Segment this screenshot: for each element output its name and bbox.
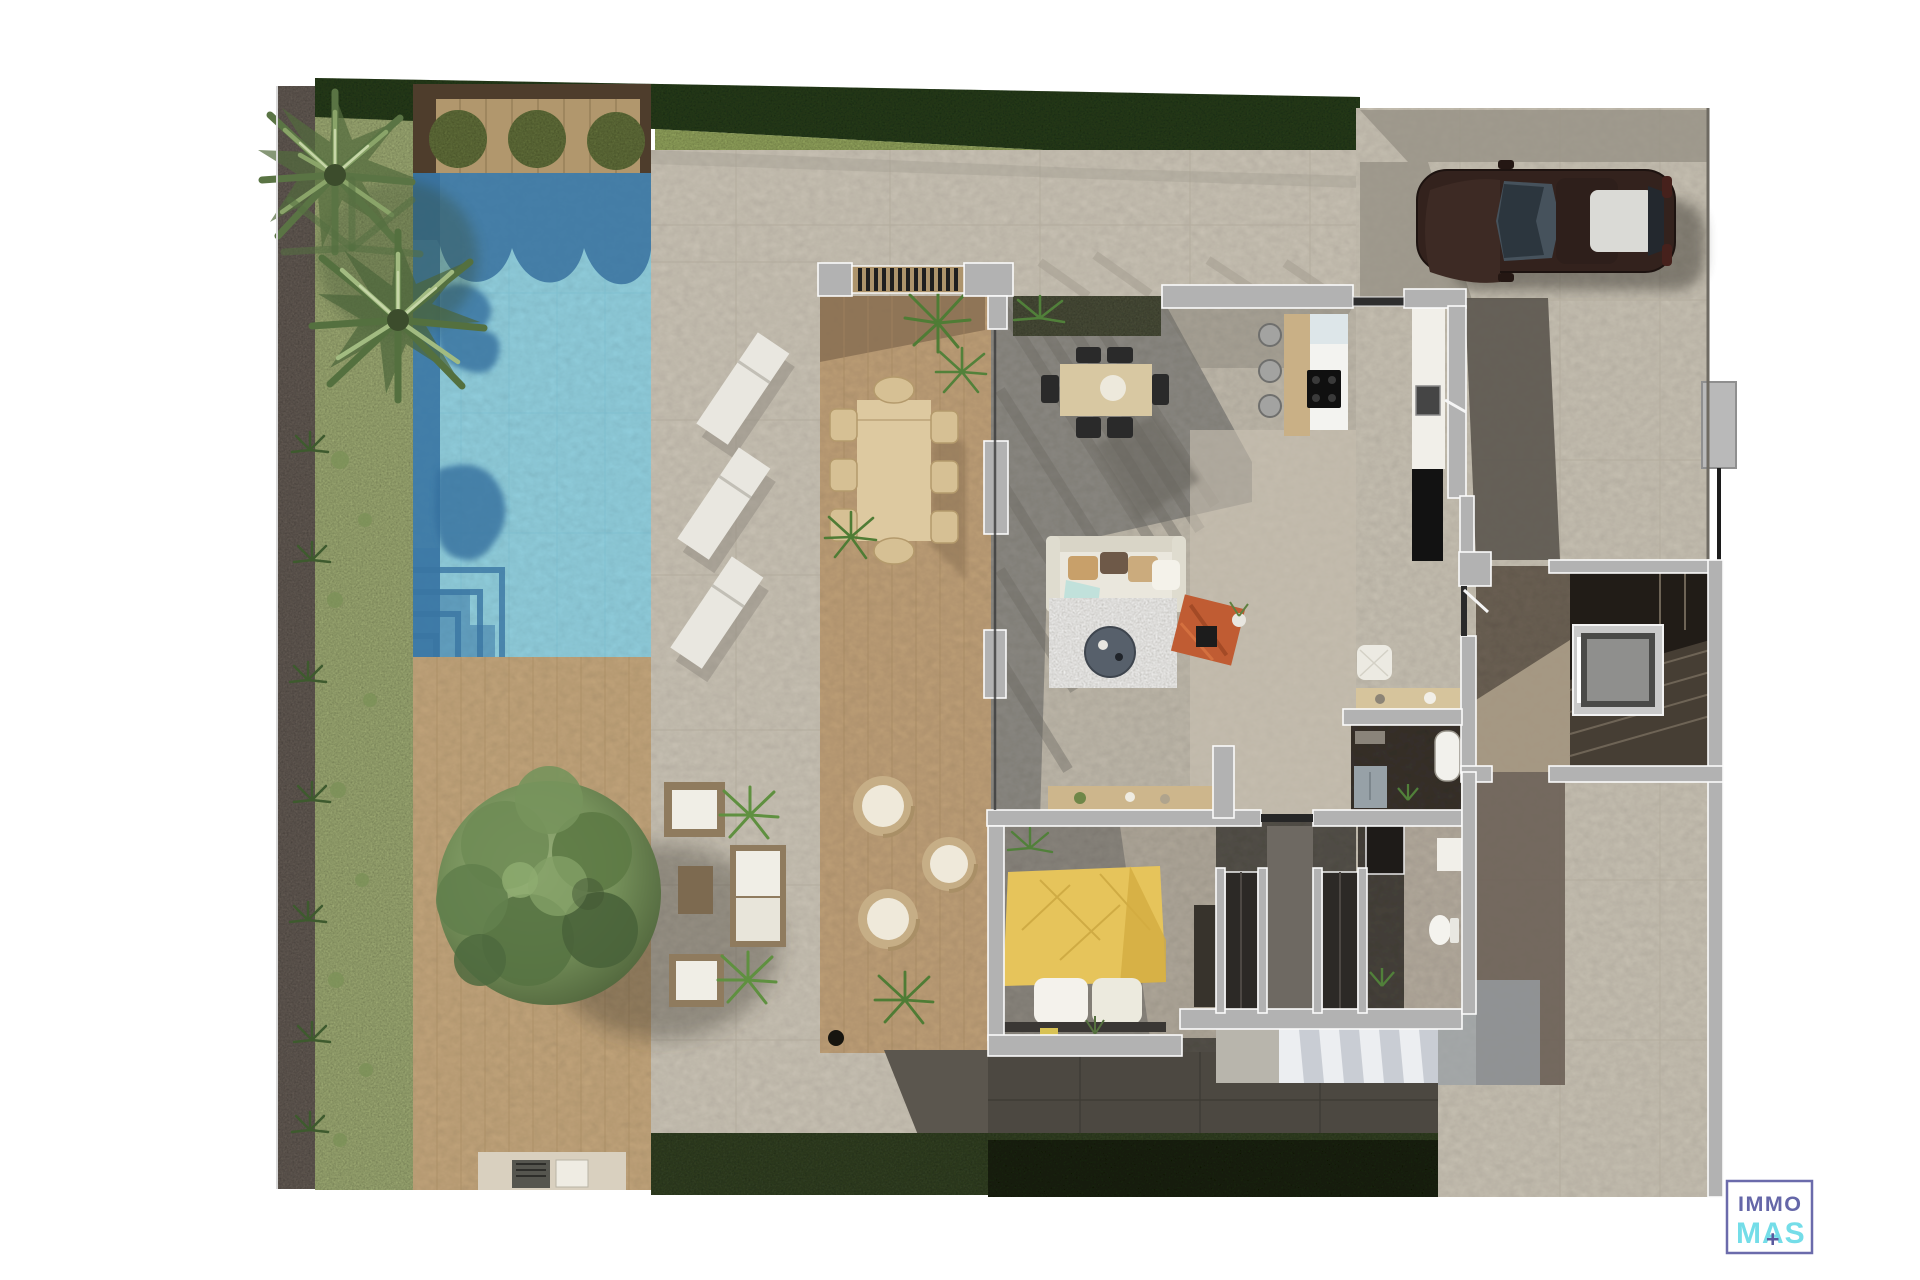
svg-text:IMMO: IMMO (1738, 1192, 1803, 1216)
svg-text:+: + (1766, 1226, 1779, 1252)
